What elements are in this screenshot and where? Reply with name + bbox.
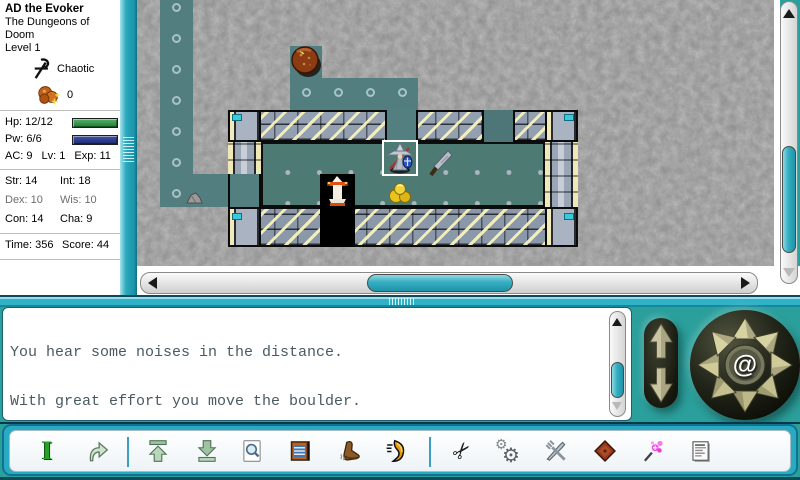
- wand-sparkles-icon: [640, 438, 666, 464]
- map-viewport[interactable]: [137, 0, 774, 270]
- down-arrow-icon[interactable]: [650, 368, 672, 402]
- corner-glint: [232, 114, 242, 121]
- alignment-label: Chaotic: [57, 63, 94, 76]
- hp-label: Hp: 12/12: [5, 116, 53, 129]
- fork-knife-icon: [543, 438, 569, 464]
- altar-sprite: [320, 174, 355, 212]
- corridor-dot: [398, 88, 407, 97]
- read-button[interactable]: [684, 435, 716, 467]
- corridor-dot: [172, 34, 181, 43]
- divider: [0, 233, 120, 234]
- scissors-icon: ✂: [448, 437, 477, 465]
- stairs-down-icon: [194, 438, 220, 464]
- search-button[interactable]: [236, 435, 268, 467]
- corner-glint: [232, 213, 242, 220]
- corner-glint: [564, 114, 574, 121]
- con-value: Con: 14: [5, 213, 60, 228]
- up-arrow-icon[interactable]: [612, 318, 622, 326]
- spellbook-icon: [592, 438, 618, 464]
- dungeon-level: Level 1: [5, 42, 120, 55]
- message-line: You hear some noises in the distance.: [10, 345, 600, 361]
- cha-value: Cha: 9: [60, 213, 92, 228]
- combat-row: AC: 9 Lv: 1 Exp: 11: [0, 148, 120, 166]
- gold-coins-icon: [36, 83, 62, 107]
- stairs-up-button[interactable]: [142, 435, 174, 467]
- score-value: Score: 44: [62, 239, 109, 254]
- apply-button[interactable]: ✂: [446, 435, 478, 467]
- boomerang-icon: [385, 438, 411, 464]
- scroll-pill[interactable]: [644, 318, 678, 408]
- splitter-grip[interactable]: [123, 136, 134, 162]
- door-icon: [287, 438, 313, 464]
- pw-label: Pw: 6/6: [5, 133, 42, 146]
- corner-sw: [228, 207, 261, 247]
- splitter-grip[interactable]: [389, 298, 414, 305]
- doorway-top-west: [385, 110, 418, 142]
- corner-se: [545, 207, 578, 247]
- cast-button[interactable]: [589, 435, 621, 467]
- doorway-top-east: [482, 110, 515, 142]
- map-vscrollbar[interactable]: [780, 1, 798, 284]
- exp-value: Exp: 11: [74, 150, 111, 165]
- corridor-dot: [172, 96, 181, 105]
- wis-value: Wis: 10: [60, 194, 97, 209]
- wall-bottom: [228, 207, 578, 247]
- int-value: Int: 18: [60, 175, 91, 190]
- throw-button[interactable]: [382, 435, 414, 467]
- attr-row-dex-wis: Dex: 10 Wis: 10: [0, 192, 120, 211]
- eat-button[interactable]: [540, 435, 572, 467]
- corner-ne: [545, 110, 578, 142]
- alignment-row: Chaotic: [32, 57, 120, 81]
- dex-value: Dex: 10: [5, 194, 60, 209]
- magnifier-page-icon: [239, 438, 265, 464]
- stairs-down-button[interactable]: [191, 435, 223, 467]
- nethack-window: AD the Evoker The Dungeons of Doom Level…: [0, 0, 800, 480]
- attr-row-con-cha: Con: 14 Cha: 9: [0, 211, 120, 230]
- hp-bar: [72, 118, 118, 128]
- message-vscrollbar[interactable]: [609, 311, 626, 417]
- toolbar-separator: [127, 437, 129, 467]
- gold-amount: 0: [67, 89, 73, 102]
- ac-value: AC: 9: [5, 150, 33, 165]
- scroll-icon: [687, 438, 713, 464]
- letter-i-icon: I: [42, 438, 52, 464]
- character-name: AD the Evoker: [5, 3, 120, 16]
- dungeon-room: [228, 110, 578, 247]
- corridor-dot: [334, 88, 343, 97]
- left-arrow-icon[interactable]: [148, 277, 157, 289]
- repeat-button[interactable]: [81, 435, 113, 467]
- hp-row: Hp: 12/12: [0, 114, 120, 131]
- down-arrow-icon[interactable]: [783, 268, 795, 277]
- map-vscrollbar-thumb[interactable]: [782, 146, 796, 253]
- message-line: With great effort you move the boulder.: [10, 394, 600, 410]
- right-arrow-icon[interactable]: [741, 277, 750, 289]
- toolbar-separator: [429, 437, 431, 467]
- corridor-dot: [366, 88, 375, 97]
- redo-arrow-icon: [84, 438, 110, 464]
- gear-icon: ⚙: [502, 443, 520, 468]
- zap-button[interactable]: [637, 435, 669, 467]
- boot-kick-icon: [337, 438, 363, 464]
- lv-value: Lv: 1: [42, 150, 66, 165]
- dark-tile: [320, 174, 355, 247]
- corridor-dot: [172, 3, 181, 12]
- divider: [0, 169, 120, 170]
- corner-glint: [564, 213, 574, 220]
- corridor-dot: [172, 189, 181, 198]
- map-hscrollbar-thumb[interactable]: [367, 274, 513, 292]
- pw-row: Pw: 6/6: [0, 131, 120, 148]
- kick-button[interactable]: [334, 435, 366, 467]
- inventory-button[interactable]: I: [31, 435, 63, 467]
- boulder-sprite: [289, 43, 323, 79]
- up-arrow-icon[interactable]: [783, 9, 795, 18]
- corridor-dot: [172, 127, 181, 136]
- direction-dial[interactable]: [690, 310, 800, 420]
- attr-row-str-int: Str: 14 Int: 18: [0, 173, 120, 192]
- message-vscrollbar-thumb[interactable]: [611, 362, 624, 398]
- up-arrow-icon[interactable]: [650, 324, 672, 358]
- corridor-dot: [172, 65, 181, 74]
- doorway-west: [228, 174, 261, 207]
- status-sidebar: AD the Evoker The Dungeons of Doom Level…: [0, 0, 120, 300]
- time-score-row: Time: 356 Score: 44: [0, 237, 120, 256]
- player-wizard-sprite: [384, 142, 416, 174]
- rock-pile-sprite: [183, 188, 205, 206]
- force-button[interactable]: ⚙ ⚙: [492, 435, 524, 467]
- divider: [0, 110, 120, 111]
- player-selection-box[interactable]: [382, 140, 418, 176]
- gold-pile-sprite: [384, 176, 416, 206]
- gold-row: 0: [36, 83, 120, 107]
- pw-bar: [72, 135, 118, 145]
- stairs-up-icon: [145, 438, 171, 464]
- map-hscrollbar[interactable]: [140, 272, 758, 294]
- wall-right: [545, 140, 578, 209]
- divider: [0, 259, 120, 260]
- dagger-sprite: [426, 148, 454, 180]
- time-value: Time: 356: [5, 239, 62, 254]
- chaos-symbol-icon: [32, 57, 52, 81]
- open-door-button[interactable]: [284, 435, 316, 467]
- down-arrow-icon[interactable]: [612, 402, 622, 410]
- dungeon-branch: The Dungeons of Doom: [5, 16, 120, 42]
- corridor-dot: [172, 158, 181, 167]
- str-value: Str: 14: [5, 175, 60, 190]
- corner-nw: [228, 110, 261, 142]
- corridor-dot: [302, 88, 311, 97]
